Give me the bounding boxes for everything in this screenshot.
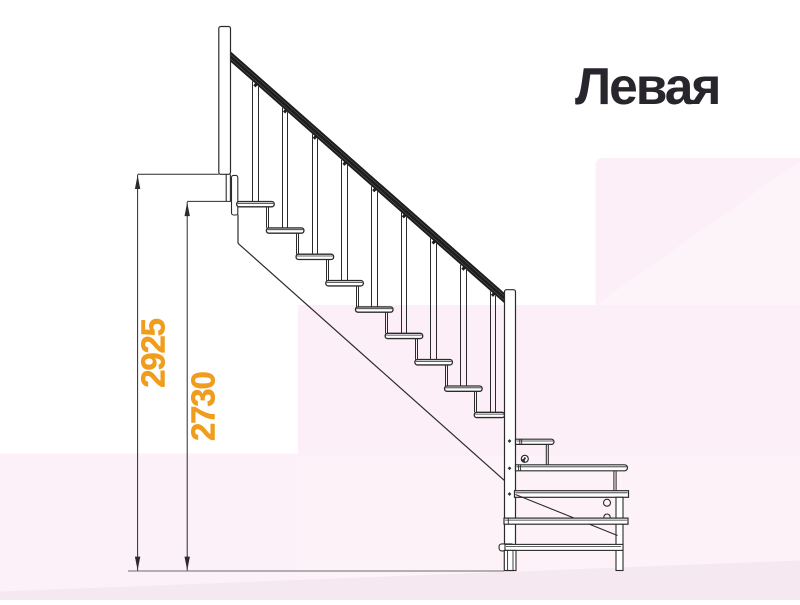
svg-text:Левая: Левая — [575, 57, 719, 115]
svg-text:2925: 2925 — [135, 318, 172, 387]
svg-text:2730: 2730 — [185, 372, 222, 441]
